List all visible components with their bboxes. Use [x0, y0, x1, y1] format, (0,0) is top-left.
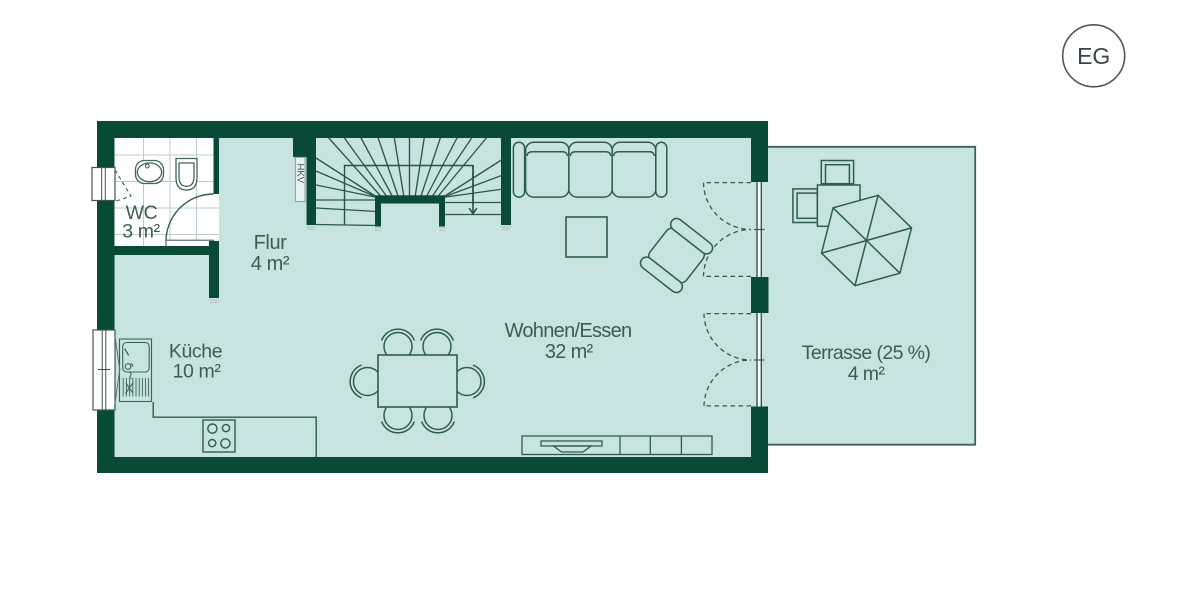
svg-text:4 m²: 4 m² — [251, 253, 290, 275]
svg-text:3 m²: 3 m² — [122, 221, 160, 243]
svg-text:EG: EG — [1077, 43, 1110, 69]
svg-text:32 m²: 32 m² — [545, 341, 594, 363]
svg-text:10 m²: 10 m² — [173, 361, 222, 383]
svg-text:Flur: Flur — [254, 232, 288, 254]
svg-text:Terrasse (25 %): Terrasse (25 %) — [802, 342, 931, 364]
svg-text:4 m²: 4 m² — [848, 363, 886, 385]
svg-text:Küche: Küche — [169, 341, 222, 363]
svg-text:HKV: HKV — [295, 164, 306, 184]
svg-text:Wohnen/Essen: Wohnen/Essen — [505, 320, 632, 342]
